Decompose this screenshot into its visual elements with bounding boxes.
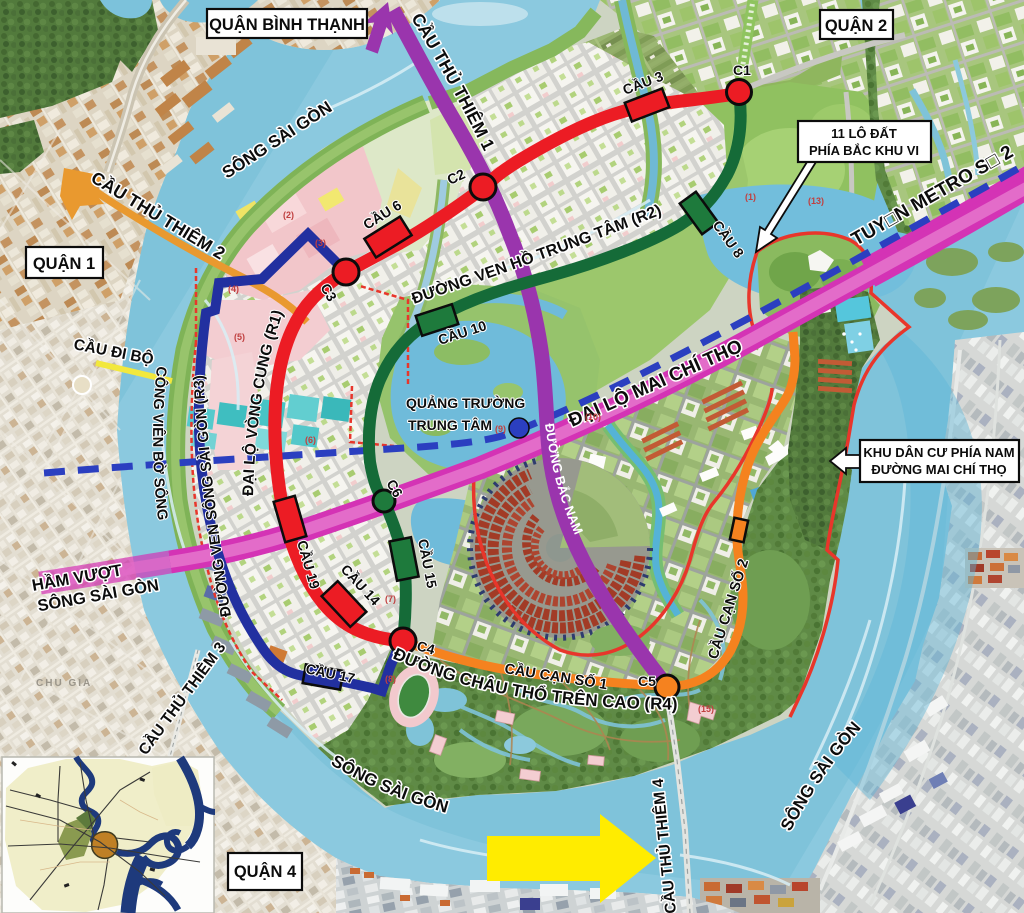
svg-text:(10): (10) (585, 412, 601, 422)
svg-text:C1: C1 (733, 62, 751, 78)
svg-text:(15): (15) (698, 704, 714, 714)
svg-text:(1): (1) (745, 192, 756, 202)
svg-text:QUẢNG TRƯỜNG: QUẢNG TRƯỜNG (406, 394, 525, 411)
svg-text:(6): (6) (305, 435, 316, 445)
svg-text:QUẬN 4: QUẬN 4 (234, 862, 297, 881)
svg-text:(5): (5) (234, 332, 245, 342)
svg-text:11 LÔ ĐẤT: 11 LÔ ĐẤT (831, 126, 897, 141)
svg-text:(8): (8) (385, 674, 396, 684)
svg-text:(7): (7) (385, 594, 396, 604)
svg-text:KHU DÂN CƯ PHÍA NAM: KHU DÂN CƯ PHÍA NAM (863, 445, 1014, 460)
svg-text:PHÍA BẮC KHU VI: PHÍA BẮC KHU VI (809, 143, 919, 158)
svg-text:QUẬN BÌNH THẠNH: QUẬN BÌNH THẠNH (209, 15, 365, 34)
svg-text:(4): (4) (228, 284, 239, 294)
svg-text:ĐƯỜNG MAI CHÍ THỌ: ĐƯỜNG MAI CHÍ THỌ (871, 462, 1006, 477)
svg-text:QUẬN 1: QUẬN 1 (33, 254, 95, 273)
svg-text:CHU GIA: CHU GIA (36, 678, 92, 689)
svg-text:(9): (9) (495, 424, 506, 434)
svg-text:TRUNG TÂM: TRUNG TÂM (408, 416, 492, 433)
svg-text:QUẬN 2: QUẬN 2 (825, 16, 887, 35)
svg-text:(2): (2) (283, 210, 294, 220)
svg-text:C5: C5 (638, 673, 656, 689)
svg-text:(3): (3) (315, 238, 326, 248)
svg-text:(13): (13) (808, 196, 824, 206)
